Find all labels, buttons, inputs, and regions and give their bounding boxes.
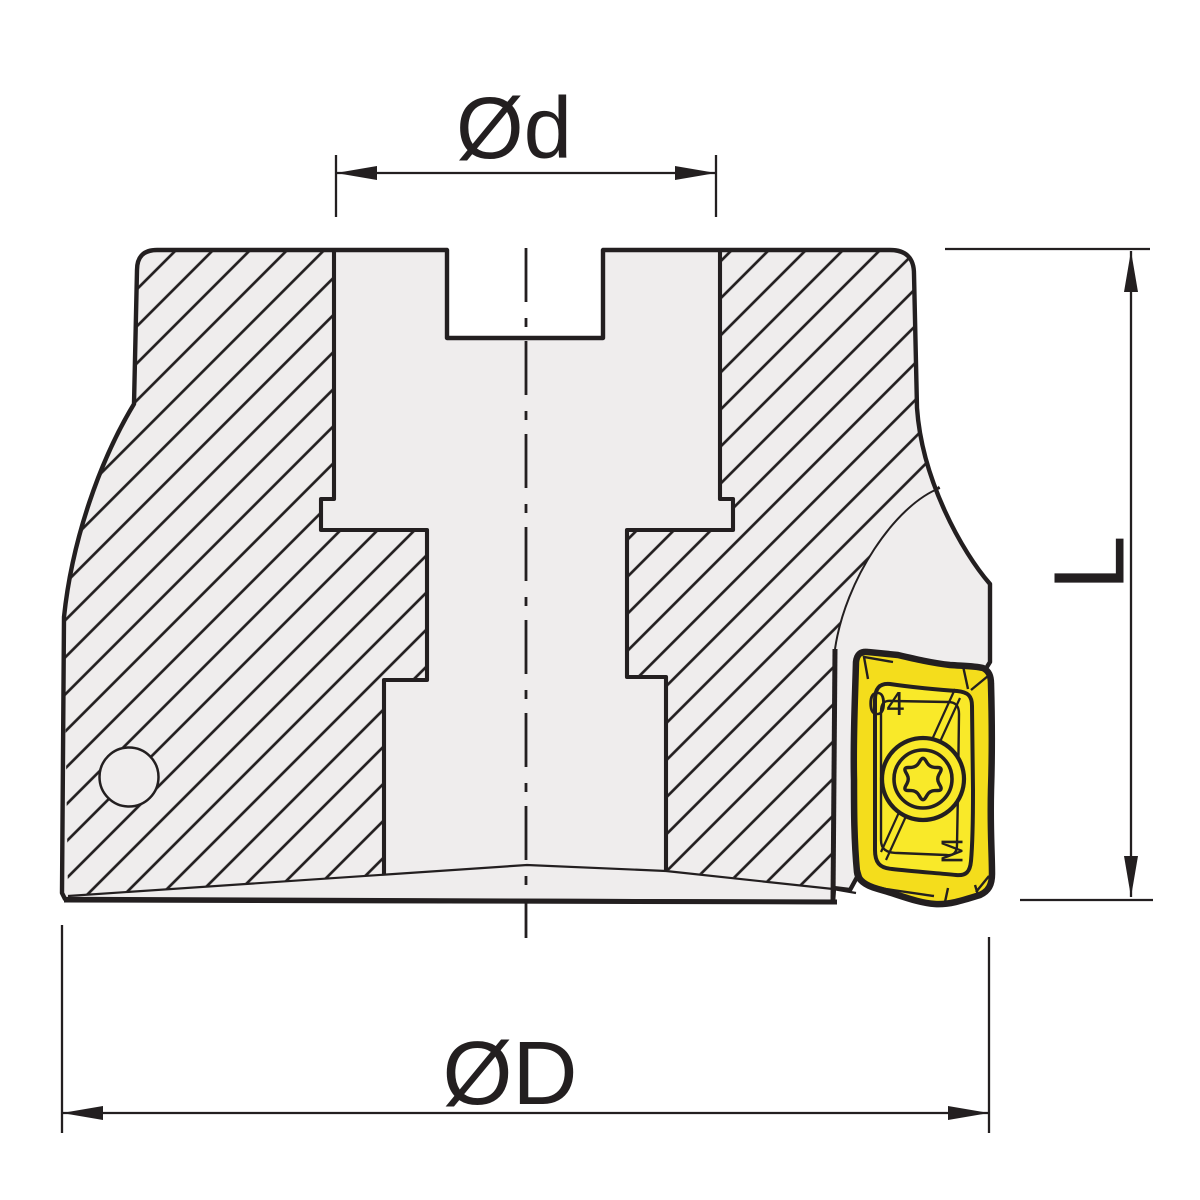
svg-text:ØD: ØD — [443, 1024, 578, 1124]
svg-text:L: L — [1034, 535, 1146, 591]
svg-text:04: 04 — [868, 685, 905, 722]
svg-text:M: M — [935, 838, 970, 864]
svg-text:Ød: Ød — [456, 80, 572, 177]
